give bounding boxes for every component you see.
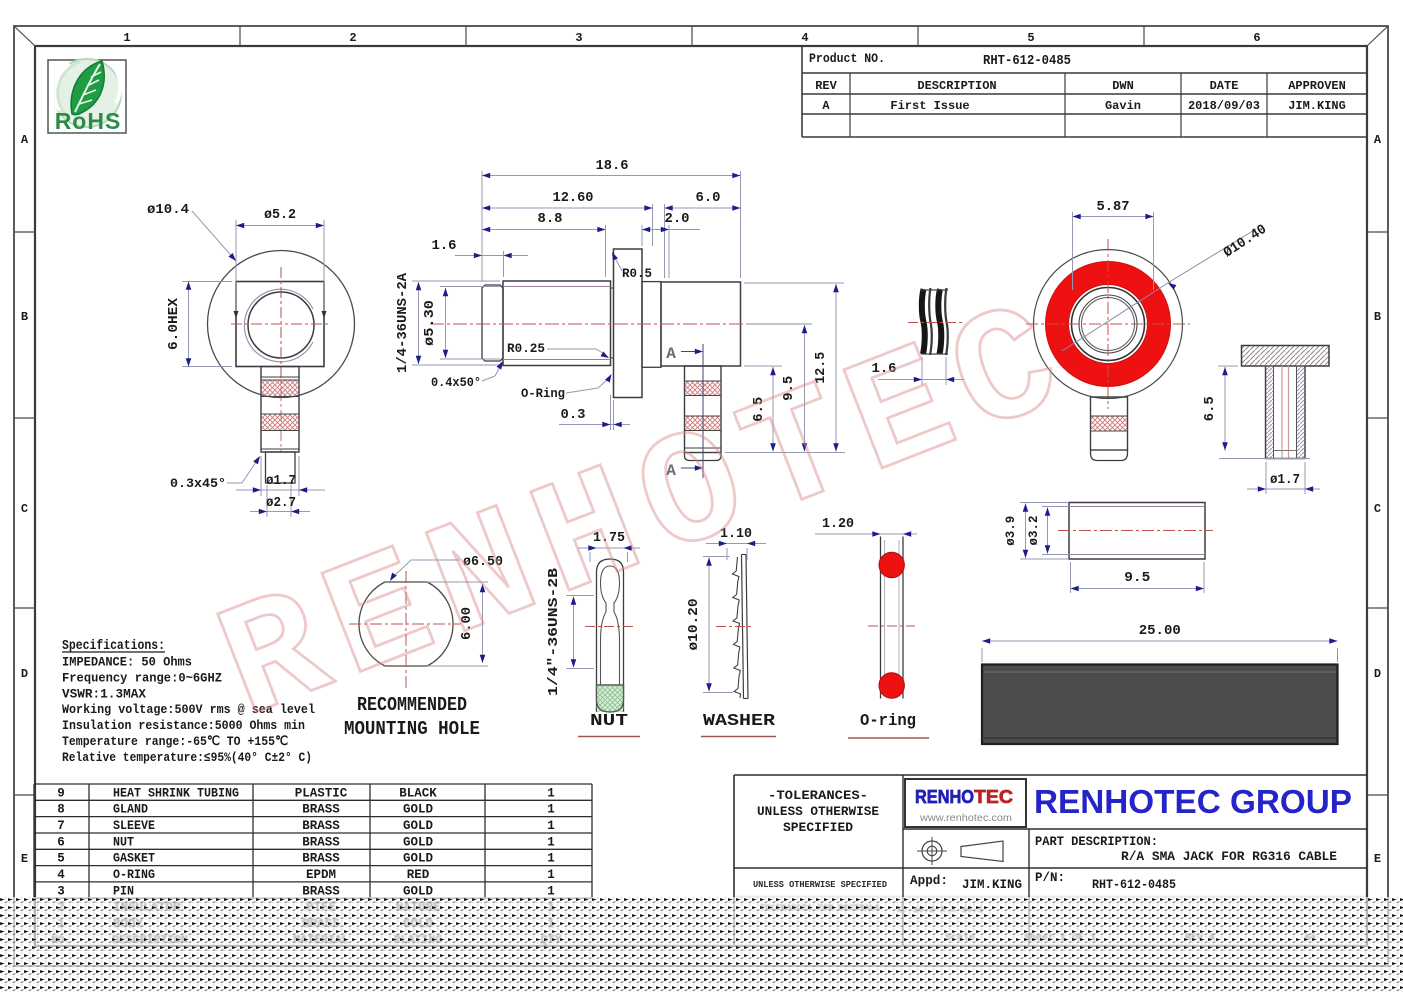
svg-text:2.0: 2.0 (665, 211, 690, 227)
svg-text:-TOLERANCES-: -TOLERANCES- (768, 788, 868, 803)
svg-text:BRASS: BRASS (302, 884, 340, 898)
svg-text:ø3.9: ø3.9 (1004, 516, 1018, 546)
svg-text:1: 1 (547, 819, 555, 833)
svg-text:BLACK: BLACK (399, 786, 437, 800)
svg-text:GOLD: GOLD (403, 884, 434, 898)
svg-text:DATE: DATE (1210, 79, 1239, 93)
svg-text:E: E (21, 852, 28, 866)
svg-text:1: 1 (547, 835, 555, 849)
svg-text:PIN: PIN (113, 884, 134, 898)
svg-text:REV: REV (815, 79, 837, 93)
svg-text:BRASS: BRASS (302, 835, 340, 849)
svg-text:0.3: 0.3 (561, 407, 586, 423)
svg-text:5: 5 (1027, 31, 1034, 45)
svg-text:PART DESCRIPTION:: PART DESCRIPTION: (1035, 835, 1158, 849)
svg-text:R0.25: R0.25 (507, 341, 545, 356)
svg-text:5: 5 (57, 852, 65, 866)
svg-text:ø1.7: ø1.7 (1270, 473, 1300, 488)
svg-text:D: D (21, 667, 28, 681)
svg-text:UNLESS OTHERWISE: UNLESS OTHERWISE (757, 804, 879, 819)
svg-text:0.4x50°: 0.4x50° (431, 375, 481, 390)
svg-text:3: 3 (57, 884, 65, 898)
svg-text:GOLD: GOLD (403, 835, 434, 849)
svg-text:4: 4 (801, 31, 808, 45)
svg-text:TEC: TEC (974, 787, 1013, 807)
svg-text:First Issue: First Issue (890, 99, 969, 113)
svg-text:ø5.2: ø5.2 (264, 207, 296, 223)
svg-text:O-ring: O-ring (860, 712, 916, 731)
svg-text:2: 2 (349, 31, 356, 45)
svg-text:GLAND: GLAND (113, 803, 148, 817)
svg-text:C: C (1374, 502, 1381, 516)
svg-text:A: A (666, 345, 676, 363)
svg-text:1: 1 (547, 803, 555, 817)
svg-text:GOLD: GOLD (403, 803, 434, 817)
svg-text:SPECIFIED: SPECIFIED (783, 820, 853, 835)
svg-text:RENHOTEC GROUP: RENHOTEC GROUP (1034, 783, 1352, 820)
svg-text:8: 8 (57, 803, 65, 817)
svg-text:ø5.30: ø5.30 (423, 300, 438, 346)
svg-text:1: 1 (547, 852, 555, 866)
svg-text:GASKET: GASKET (113, 852, 155, 866)
svg-text:5.87: 5.87 (1097, 199, 1130, 215)
svg-text:Product NO.: Product NO. (809, 51, 885, 66)
svg-text:EPDM: EPDM (306, 868, 336, 882)
svg-text:VSWR:1.3MAX: VSWR:1.3MAX (62, 686, 146, 701)
svg-text:PLASTIC: PLASTIC (295, 786, 348, 800)
svg-text:Frequency range:0~6GHZ: Frequency range:0~6GHZ (62, 670, 222, 685)
svg-text:B: B (21, 310, 28, 324)
svg-text:ø10.20: ø10.20 (686, 599, 702, 651)
svg-text:25.00: 25.00 (1139, 623, 1181, 639)
svg-text:ø10.4: ø10.4 (147, 202, 189, 218)
svg-text:GOLD: GOLD (403, 852, 434, 866)
svg-text:ø2.7: ø2.7 (266, 496, 296, 511)
svg-text:NUT: NUT (113, 835, 134, 849)
svg-text:SLEEVE: SLEEVE (113, 819, 155, 833)
svg-text:NUT: NUT (590, 712, 628, 731)
svg-text:O-Ring: O-Ring (521, 386, 565, 401)
svg-text:7: 7 (57, 819, 65, 833)
svg-text:18.6: 18.6 (596, 158, 629, 174)
svg-text:0.3x45°: 0.3x45° (170, 476, 226, 491)
svg-text:P/N:: P/N: (1035, 871, 1065, 885)
svg-text:BRASS: BRASS (302, 819, 340, 833)
svg-text:RED: RED (407, 868, 430, 882)
svg-text:6: 6 (57, 835, 65, 849)
svg-text:6.0: 6.0 (696, 190, 721, 206)
svg-text:WASHER: WASHER (703, 712, 776, 731)
svg-text:RoHS: RoHS (55, 108, 122, 134)
svg-text:A: A (822, 99, 830, 113)
svg-text:4: 4 (57, 868, 65, 882)
svg-text:R/A SMA JACK FOR RG316 CABLE: R/A SMA JACK FOR RG316 CABLE (1121, 850, 1337, 864)
svg-text:Gavin: Gavin (1105, 99, 1141, 113)
svg-text:Appd:: Appd: (910, 874, 948, 888)
svg-text:B: B (1374, 310, 1381, 324)
svg-text:R0.5: R0.5 (622, 266, 652, 281)
svg-text:ø1.7: ø1.7 (266, 474, 296, 489)
svg-text:JIM.KING: JIM.KING (962, 877, 1022, 892)
svg-text:9.5: 9.5 (1124, 570, 1150, 586)
svg-text:RHT-612-0485: RHT-612-0485 (983, 53, 1071, 69)
svg-text:1: 1 (547, 786, 555, 800)
svg-text:2018/09/03: 2018/09/03 (1188, 99, 1260, 113)
svg-text:DESCRIPTION: DESCRIPTION (917, 79, 996, 93)
svg-text:UNLESS OTHERWISE SPECIFIED: UNLESS OTHERWISE SPECIFIED (753, 880, 888, 890)
svg-text:1.6: 1.6 (432, 238, 457, 254)
svg-text:IMPEDANCE: 50 Ohms: IMPEDANCE: 50 Ohms (62, 655, 192, 670)
svg-text:DWN: DWN (1112, 79, 1134, 93)
svg-text:www.renhotec.com: www.renhotec.com (919, 813, 1012, 824)
svg-text:HEAT SHRINK TUBING: HEAT SHRINK TUBING (113, 786, 239, 800)
svg-text:1/4-36UNS-2A: 1/4-36UNS-2A (396, 272, 411, 373)
svg-text:1: 1 (547, 868, 555, 882)
svg-text:9: 9 (57, 786, 65, 800)
svg-text:GOLD: GOLD (403, 819, 434, 833)
svg-text:1: 1 (123, 31, 130, 45)
svg-text:3: 3 (575, 31, 582, 45)
svg-text:1: 1 (547, 884, 555, 898)
svg-text:8.8: 8.8 (538, 211, 563, 227)
svg-text:ø3.2: ø3.2 (1027, 516, 1041, 546)
svg-text:A: A (21, 133, 29, 147)
svg-text:RENHO: RENHO (915, 787, 974, 807)
svg-text:A: A (1374, 133, 1382, 147)
svg-text:E: E (1374, 852, 1381, 866)
svg-text:O-RING: O-RING (113, 868, 155, 882)
svg-text:BRASS: BRASS (302, 852, 340, 866)
svg-text:12.60: 12.60 (553, 190, 594, 206)
svg-text:D: D (1374, 667, 1381, 681)
svg-text:APPROVEN: APPROVEN (1288, 79, 1346, 93)
svg-text:6.0HEX: 6.0HEX (166, 297, 182, 350)
svg-text:JIM.KING: JIM.KING (1288, 99, 1346, 113)
svg-text:RHT-612-0485: RHT-612-0485 (1092, 877, 1176, 892)
svg-text:6.5: 6.5 (1202, 396, 1218, 421)
svg-text:6: 6 (1253, 31, 1260, 45)
svg-text:BRASS: BRASS (302, 803, 340, 817)
svg-text:C: C (21, 502, 28, 516)
